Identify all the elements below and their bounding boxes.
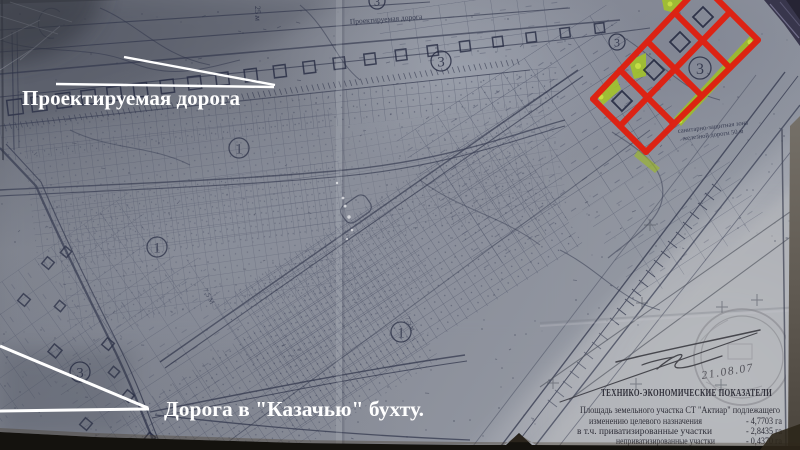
svg-text:в т.ч. приватизированные учас: в т.ч. приватизированные участки <box>577 426 712 436</box>
svg-text:Дорога в "Казачью" бухту.: Дорога в "Казачью" бухту. <box>164 397 424 421</box>
svg-text:3: 3 <box>437 54 445 70</box>
svg-text:3: 3 <box>696 61 704 78</box>
svg-text:Проектируемая дорога: Проектируемая дорога <box>22 86 240 110</box>
svg-text:- 4,7703 га: - 4,7703 га <box>746 416 782 426</box>
svg-text:Площадь земельного участка СТ: Площадь земельного участка СТ "Актиар" п… <box>580 405 780 415</box>
svg-text:ТЕХНИКО-ЭКОНОМИЧЕСКИЕ ПОКАЗАТЕ: ТЕХНИКО-ЭКОНОМИЧЕСКИЕ ПОКАЗАТЕЛИ <box>601 387 772 399</box>
svg-text:3: 3 <box>614 35 620 49</box>
svg-text:3: 3 <box>374 0 380 8</box>
svg-text:25 м: 25 м <box>253 6 263 21</box>
svg-text:изменению целевого назначения: изменению целевого назначения <box>589 416 702 426</box>
